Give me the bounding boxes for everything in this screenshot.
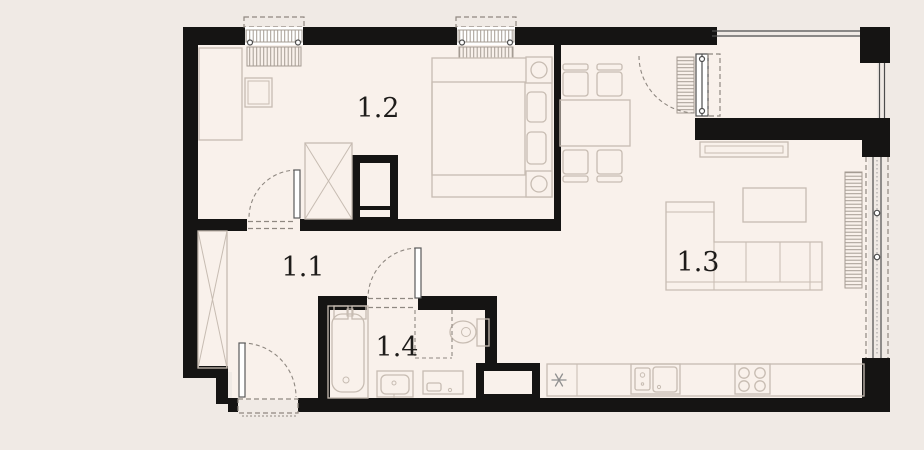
hall-bedroom-wall-left (198, 219, 247, 231)
bedroom-duct-slot (360, 210, 390, 217)
bottom-wall (298, 398, 890, 412)
kitchen-duct-niche (484, 371, 532, 394)
room-label-bedroom: 1.2 (357, 93, 400, 124)
radiator (247, 47, 301, 66)
room-label-bathroom: 1.4 (376, 332, 419, 363)
room-label-hallway: 1.1 (282, 252, 325, 283)
floor-plan-svg: 1.1 1.2 1.3 1.4 (0, 0, 924, 450)
right-window-top-block (862, 118, 890, 157)
nightstand (526, 57, 552, 83)
bedroom-duct-niche (360, 163, 390, 206)
balcony-floor (712, 37, 877, 118)
right-window-bottom-block (862, 358, 890, 412)
left-step-wall-v (216, 378, 228, 404)
nightstand (526, 171, 552, 197)
hall-bedroom-wall-right (300, 219, 561, 231)
radiator (845, 172, 862, 288)
double-bed (432, 57, 552, 197)
room-label-living-room: 1.3 (677, 247, 720, 278)
bottom-wall-jamb (228, 398, 238, 412)
balcony-right-block (860, 27, 890, 63)
floor-plan-image: 1.1 1.2 1.3 1.4 (0, 0, 924, 450)
left-wall (183, 27, 198, 378)
radiator (677, 57, 694, 113)
balcony-bottom-wall (695, 118, 890, 140)
bathroom-right-wall (485, 296, 497, 367)
bedroom-window-left (244, 17, 304, 66)
